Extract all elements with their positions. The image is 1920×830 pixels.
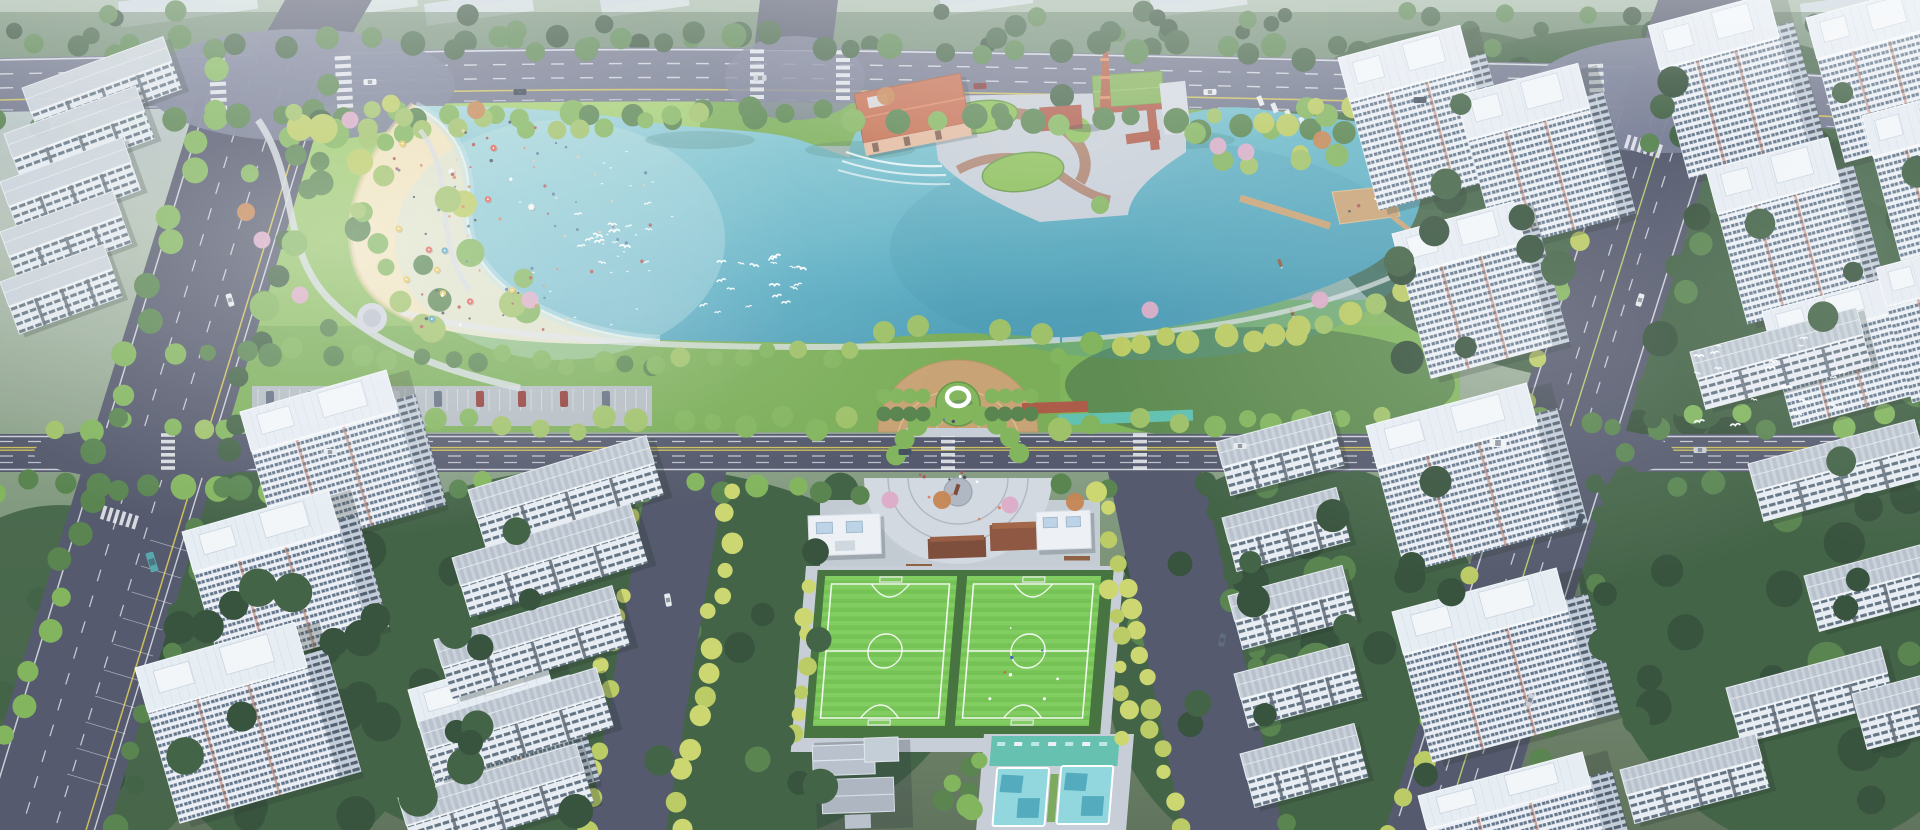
atmospheric-haze: [0, 0, 1920, 830]
aerial-render-scene: Aerial bird's-eye rendering of a lakesid…: [0, 0, 1920, 830]
aerial-render: Aerial bird's-eye rendering of a lakesid…: [0, 0, 1920, 830]
